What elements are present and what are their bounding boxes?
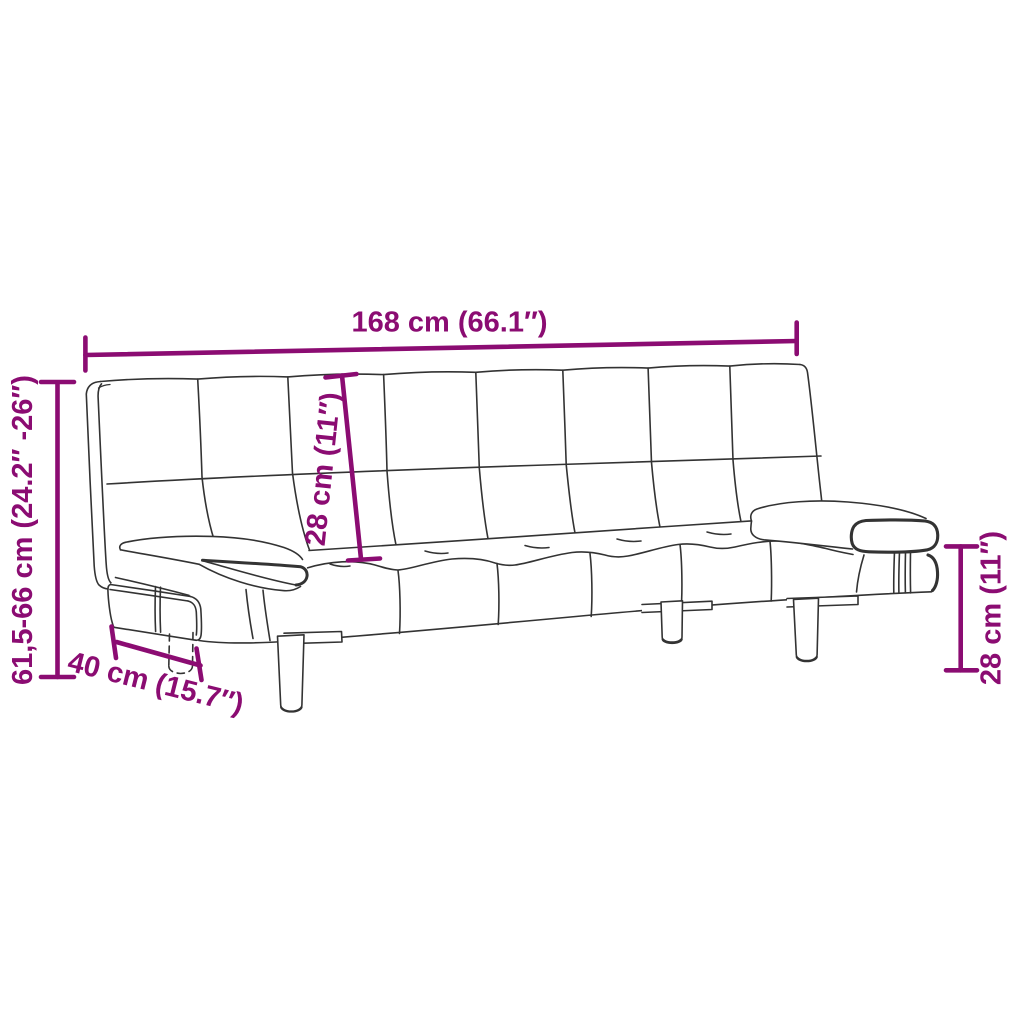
svg-text:61,5-66 cm (24.2″ -26″): 61,5-66 cm (24.2″ -26″) bbox=[7, 375, 39, 685]
svg-text:168 cm (66.1″): 168 cm (66.1″) bbox=[351, 307, 547, 339]
svg-text:28 cm (11″): 28 cm (11″) bbox=[976, 531, 1008, 685]
svg-text:40 cm (15.7″): 40 cm (15.7″) bbox=[65, 646, 247, 721]
